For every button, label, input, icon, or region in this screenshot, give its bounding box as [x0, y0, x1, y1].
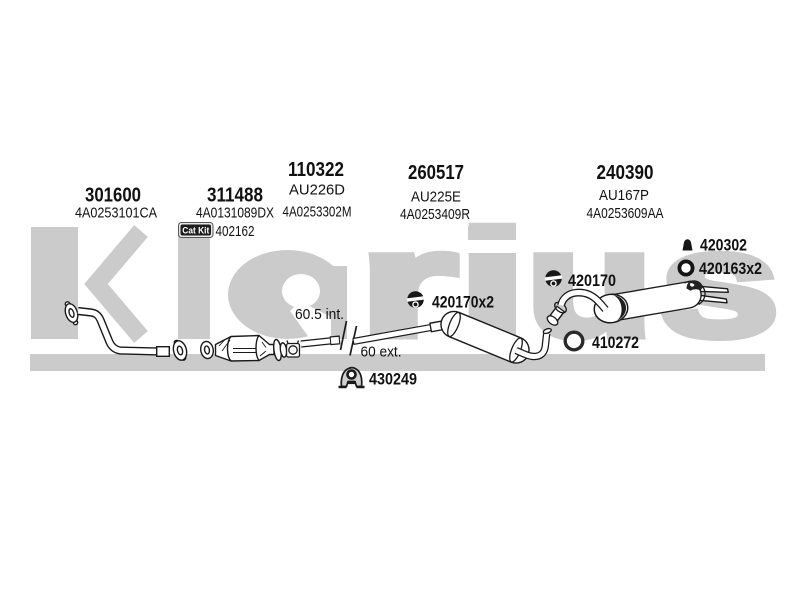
- svg-text:420302: 420302: [700, 236, 747, 255]
- svg-text:4A0253101CA: 4A0253101CA: [75, 205, 157, 222]
- svg-text:260517: 260517: [408, 162, 464, 184]
- svg-text:4A0131089DX: 4A0131089DX: [196, 205, 274, 222]
- svg-text:420170: 420170: [568, 271, 616, 290]
- svg-text:410272: 410272: [592, 333, 639, 352]
- svg-text:Cat Kit: Cat Kit: [182, 226, 209, 236]
- svg-text:240390: 240390: [597, 162, 654, 184]
- svg-text:4A0253409R: 4A0253409R: [400, 206, 470, 223]
- svg-text:r: r: [359, 200, 457, 367]
- svg-text:430249: 430249: [369, 370, 417, 389]
- svg-text:4A0253609AA: 4A0253609AA: [587, 205, 664, 222]
- svg-text:420163x2: 420163x2: [699, 259, 762, 278]
- svg-text:60 ext.: 60 ext.: [361, 344, 402, 361]
- svg-text:4A0253302M: 4A0253302M: [283, 204, 352, 221]
- svg-text:AU225E: AU225E: [411, 189, 461, 206]
- svg-text:110322: 110322: [288, 159, 344, 181]
- svg-text:420170x2: 420170x2: [432, 293, 494, 312]
- svg-text:402162: 402162: [216, 223, 255, 240]
- svg-text:301600: 301600: [85, 185, 141, 207]
- svg-text:311488: 311488: [207, 185, 263, 207]
- svg-text:60.5 int.: 60.5 int.: [295, 306, 344, 323]
- svg-text:AU226D: AU226D: [289, 182, 345, 199]
- svg-text:AU167P: AU167P: [599, 187, 649, 204]
